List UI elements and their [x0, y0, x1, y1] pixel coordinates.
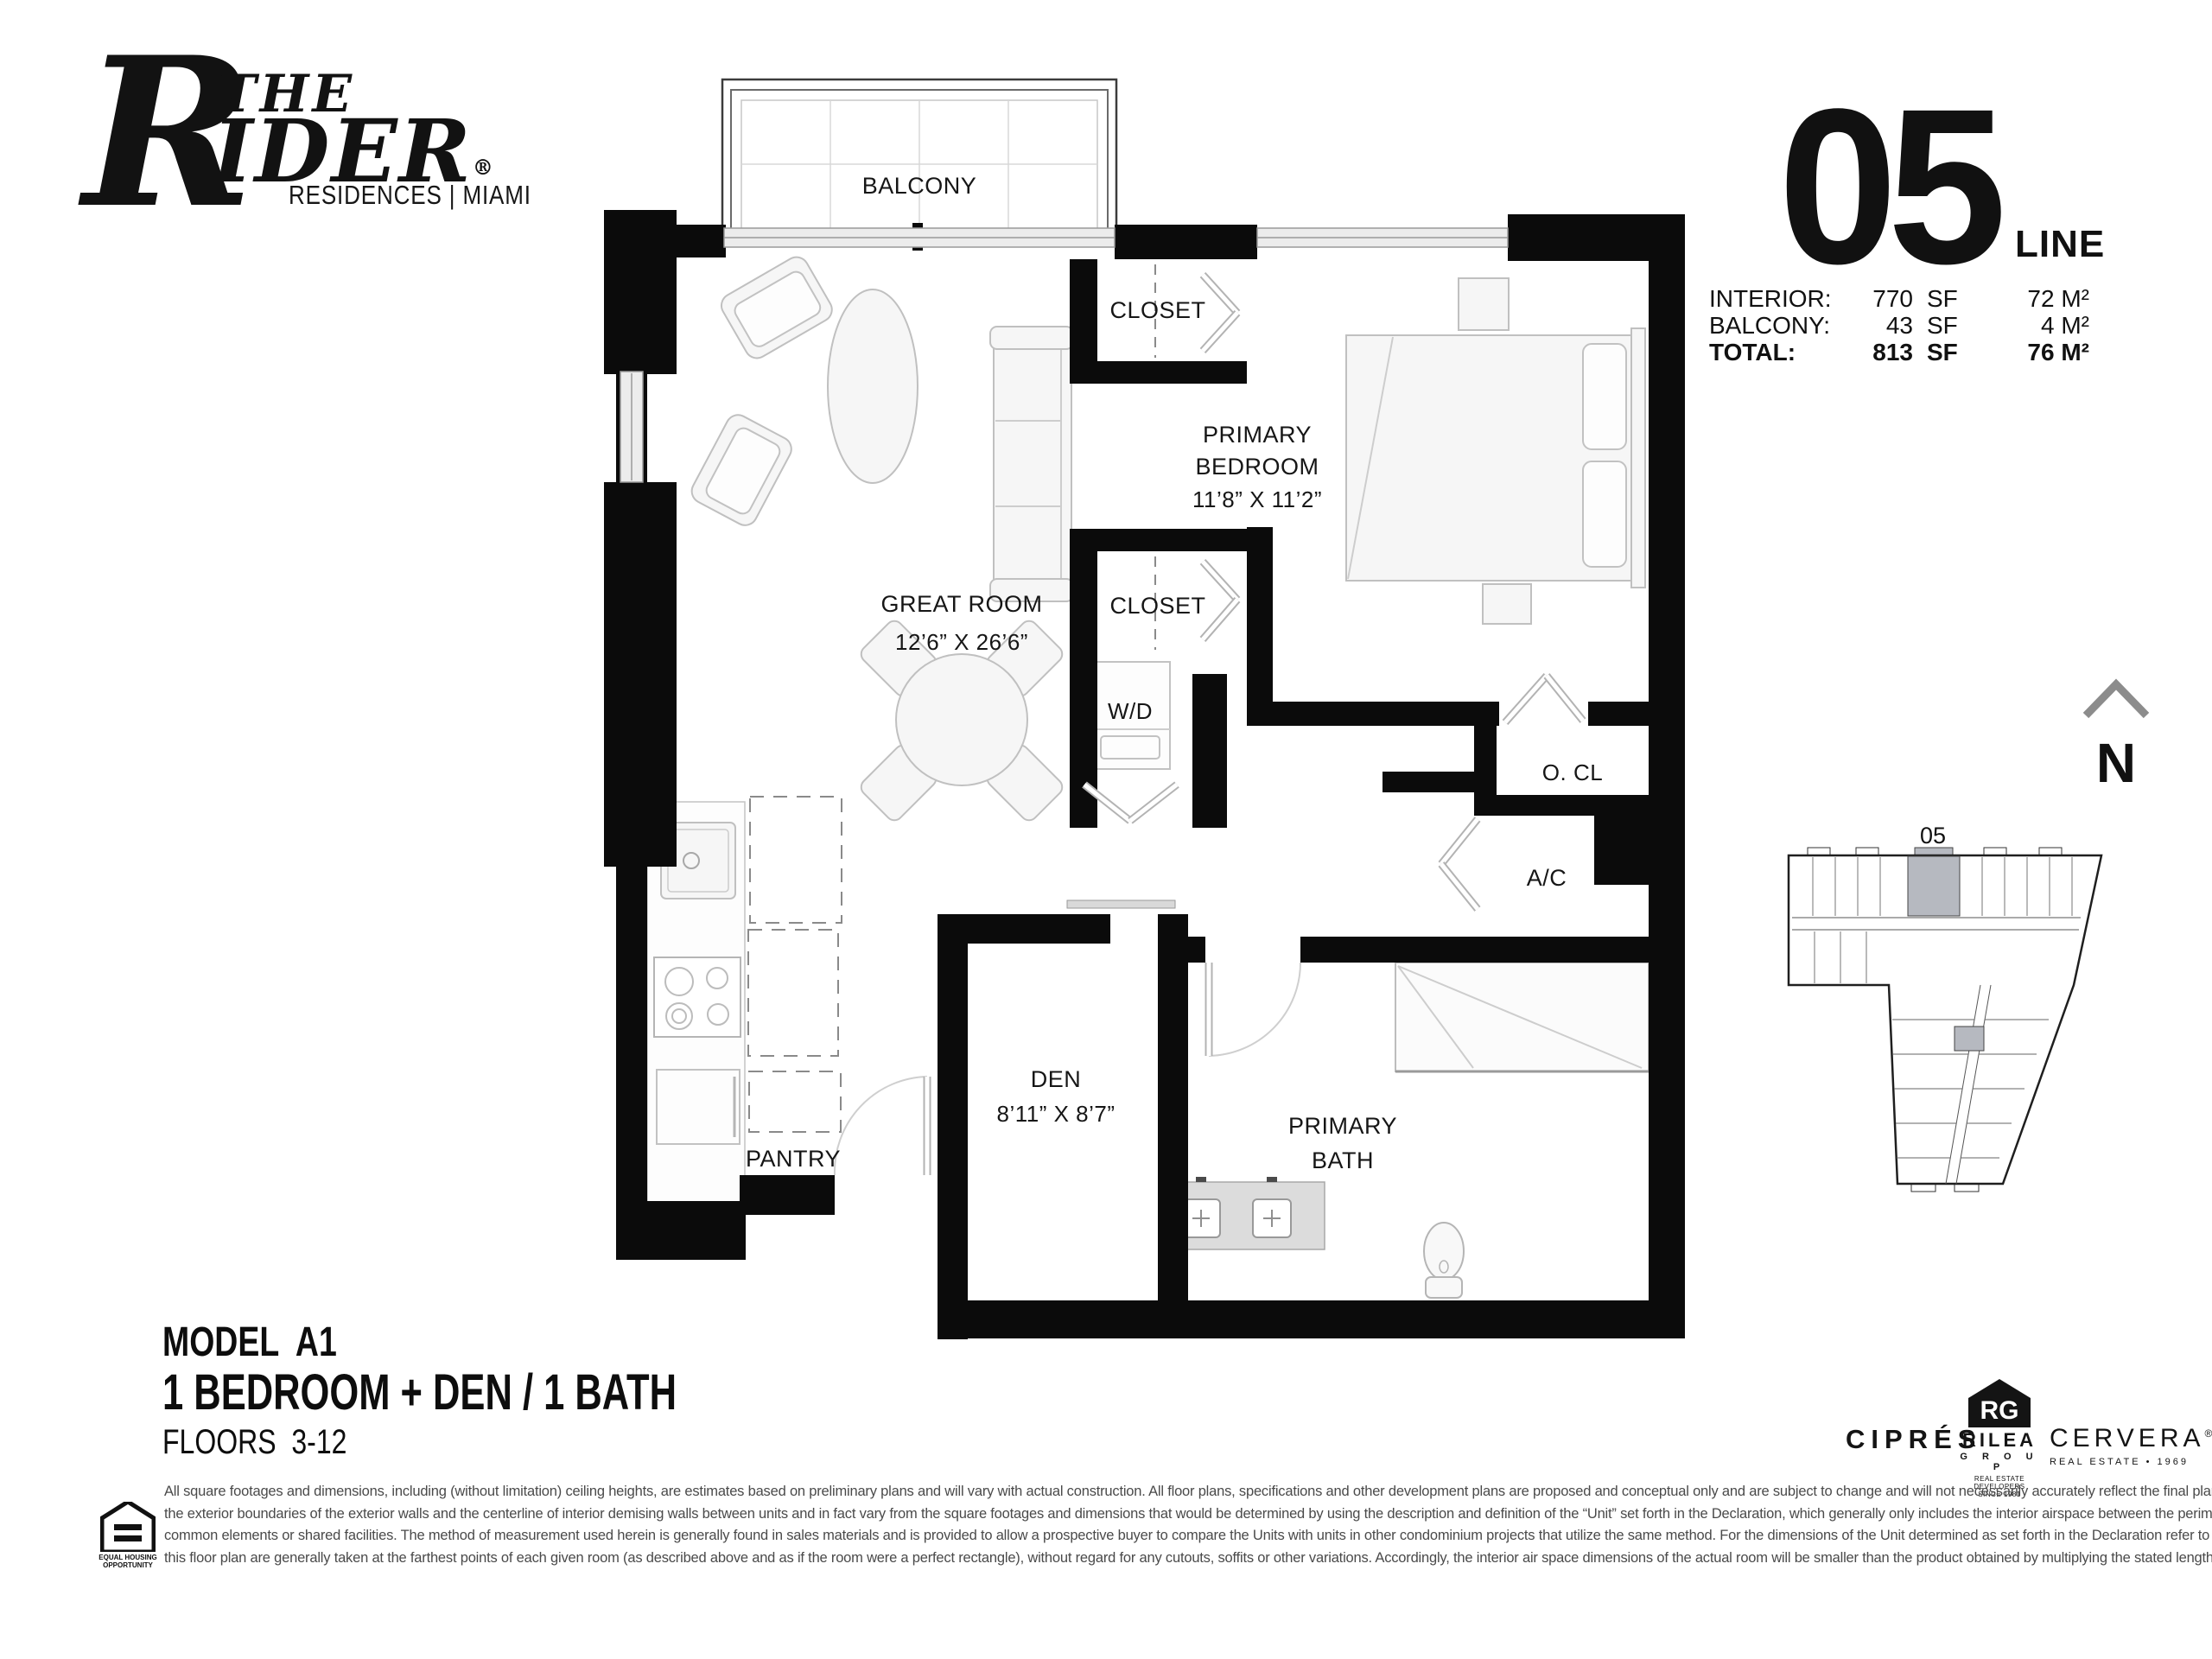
living-chairs — [688, 253, 836, 530]
registered-mark: ® — [473, 155, 493, 180]
room-label-primary-bath-2: BATH — [1312, 1147, 1374, 1173]
area-sf-value: 770 — [1858, 285, 1913, 312]
rilea-group: G R O U P — [1955, 1452, 2044, 1472]
cervera-registered-mark: ® — [2205, 1427, 2212, 1440]
area-sf-unit: SF — [1913, 312, 1980, 339]
room-dims-primary-bedroom: 11’8” X 11’2” — [1192, 486, 1322, 512]
bed — [1346, 328, 1645, 588]
room-label-wd: W/D — [1108, 698, 1153, 724]
model-type: 1 BEDROOM + DEN / 1 BATH — [162, 1365, 677, 1421]
keyplan-unit-secondary-highlight — [1955, 1027, 1984, 1051]
cabinet-dashed — [748, 930, 838, 1056]
room-label-den: DEN — [1031, 1066, 1082, 1092]
area-row-balcony: BALCONY: 43 SF 4 M² — [1709, 312, 2089, 339]
toilet — [1424, 1223, 1464, 1298]
model-name: MODEL A1 — [162, 1320, 697, 1365]
floorplan-sheet: { "brand": { "rider_r": "R", "the": "THE… — [0, 0, 2212, 1659]
balcony-area — [722, 79, 1116, 230]
shower — [1395, 963, 1649, 1071]
room-dims-great-room: 12’6” X 26’6” — [895, 629, 1028, 655]
room-label-great-room: GREAT ROOM — [880, 591, 1042, 617]
area-table: INTERIOR: 770 SF 72 M² BALCONY: 43 SF 4 … — [1709, 285, 2089, 365]
room-label-ocl: O. CL — [1542, 760, 1603, 785]
floorplan-drawing: BALCONY CLOSET PRIMARY BEDROOM 11’8” X 1… — [596, 52, 1702, 1348]
model-floors: FLOORS 3-12 — [162, 1422, 711, 1462]
nightstand — [1459, 278, 1509, 330]
keyplan-panel: N 05 — [1776, 657, 2182, 1210]
area-label: BALCONY: — [1709, 312, 1858, 339]
area-sf-value: 813 — [1858, 339, 1913, 365]
disclaimer-line: common elements or shared facilities. Th… — [164, 1525, 2156, 1548]
cervera-tagline: REAL ESTATE • 1969 — [2050, 1457, 2179, 1467]
room-dims-den: 8’11” X 8’7” — [996, 1101, 1115, 1127]
keyplan-building — [1789, 848, 2101, 1192]
keyplan-unit-05-highlight — [1908, 856, 1960, 916]
room-label-balcony: BALCONY — [862, 173, 977, 199]
cooktop — [654, 957, 741, 1037]
pantry-cabinet-dashed — [749, 1071, 841, 1132]
disclaimer: All square footages and dimensions, incl… — [164, 1481, 2156, 1569]
room-label-primary-bedroom-2: BEDROOM — [1195, 454, 1319, 480]
rilea-house-icon: RG — [1955, 1379, 2044, 1427]
equal-housing-label-2: OPPORTUNITY — [93, 1561, 162, 1569]
brand-subtitle: RESIDENCES | MIAMI — [289, 180, 531, 211]
north-chevron-icon — [2086, 684, 2146, 715]
refrigerator — [657, 1070, 740, 1144]
sofa — [990, 327, 1073, 601]
equal-housing-label-1: EQUAL HOUSING — [93, 1554, 162, 1561]
equal-housing-block: EQUAL HOUSING OPPORTUNITY — [93, 1502, 162, 1569]
area-sf-value: 43 — [1858, 312, 1913, 339]
area-label: INTERIOR: — [1709, 285, 1858, 312]
room-label-primary-bath-1: PRIMARY — [1288, 1113, 1397, 1139]
keyplan-unit-label: 05 — [1920, 823, 1946, 849]
cervera-name: CERVERA — [2050, 1424, 2205, 1452]
area-sf-unit: SF — [1913, 285, 1980, 312]
north-label: N — [2096, 732, 2136, 794]
area-row-interior: INTERIOR: 770 SF 72 M² — [1709, 285, 2089, 312]
area-metric-value: 76 M² — [1980, 339, 2089, 365]
area-sf-unit: SF — [1913, 339, 1980, 365]
cervera-logo: CERVERA® REAL ESTATE • 1969 — [2050, 1424, 2179, 1467]
room-label-primary-bedroom-1: PRIMARY — [1203, 422, 1312, 448]
area-row-total: TOTAL: 813 SF 76 M² — [1709, 339, 2089, 365]
model-info: MODEL A1 1 BEDROOM + DEN / 1 BATH FLOORS… — [162, 1320, 848, 1462]
unit-line-number: 05 — [1778, 76, 1997, 297]
disclaimer-line: the exterior boundaries of the exterior … — [164, 1503, 2156, 1526]
area-metric-value: 72 M² — [1980, 285, 2089, 312]
cabinet-dashed — [750, 797, 842, 923]
room-label-closet-top: CLOSET — [1109, 297, 1205, 323]
rilea-rg-monogram: RG — [1980, 1396, 2019, 1425]
room-label-closet-bottom: CLOSET — [1109, 593, 1205, 619]
area-metric-value: 4 M² — [1980, 312, 2089, 339]
room-label-ac: A/C — [1527, 865, 1567, 891]
unit-line-label: LINE — [2015, 223, 2105, 266]
room-label-pantry: PANTRY — [746, 1146, 841, 1172]
nightstand — [1483, 584, 1531, 624]
coffee-table — [828, 289, 918, 483]
disclaimer-line: this floor plan are generally taken at t… — [164, 1548, 2156, 1570]
equal-housing-icon — [100, 1502, 156, 1552]
area-label: TOTAL: — [1709, 339, 1858, 365]
disclaimer-line: All square footages and dimensions, incl… — [164, 1481, 2156, 1503]
rilea-name: RILEA — [1955, 1429, 2044, 1452]
